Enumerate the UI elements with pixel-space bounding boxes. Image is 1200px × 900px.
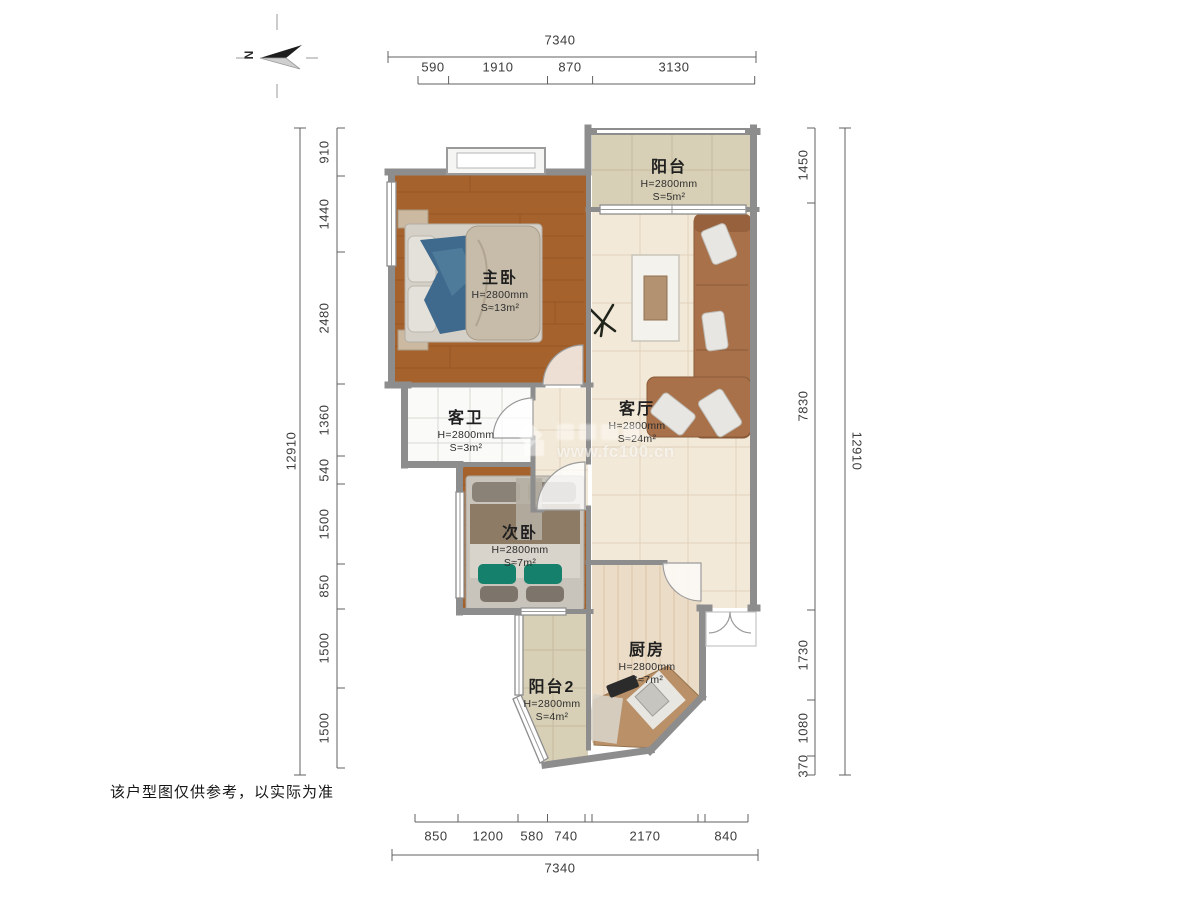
room-label-living-room: 客厅 H=2800mm S≈24m²	[609, 400, 666, 446]
dim-bottom-seg-4: 740	[554, 829, 577, 844]
room-ceiling-height: H=2800mm	[641, 178, 698, 191]
dim-bottom-total: 7340	[545, 861, 576, 876]
dim-top-seg-2: 1910	[483, 60, 514, 75]
dim-left-seg-7: 850	[317, 574, 332, 597]
dim-left-seg-5: 540	[317, 458, 332, 481]
room-label-guest-bathroom: 客卫 H=2800mm S=3m²	[438, 409, 495, 455]
room-area: S=4m²	[524, 711, 581, 724]
dim-left-seg-4: 1360	[317, 405, 332, 436]
entry-door	[706, 612, 756, 646]
dim-left-seg-1: 910	[317, 140, 332, 163]
dim-top-seg-3: 870	[558, 60, 581, 75]
dim-left-total: 12910	[284, 432, 299, 471]
dim-bottom-seg-6: 840	[714, 829, 737, 844]
room-ceiling-height: H=2800mm	[609, 420, 666, 433]
dim-bottom-seg-2: 1200	[473, 829, 504, 844]
floorplan-drawing	[0, 0, 1200, 900]
room-ceiling-height: H=2800mm	[524, 698, 581, 711]
dim-top-total: 7340	[545, 33, 576, 48]
room-label-kitchen: 厨房 H=2800mm S≈7m²	[619, 641, 676, 687]
window-balcony2-left	[515, 615, 523, 695]
room-ceiling-height: H=2800mm	[438, 429, 495, 442]
balcony-slider	[600, 205, 746, 214]
room-area: S≈24m²	[609, 433, 666, 446]
room-ceiling-height: H=2800mm	[472, 289, 529, 302]
room-name: 客卫	[438, 409, 495, 429]
dim-right-seg-5: 370	[796, 754, 811, 777]
room-ceiling-height: H=2800mm	[619, 661, 676, 674]
dim-bottom-seg-3: 580	[520, 829, 543, 844]
room-ceiling-height: H=2800mm	[492, 544, 549, 557]
room-label-second-bedroom: 次卧 H=2800mm S≈7m²	[492, 524, 549, 570]
dim-right-seg-1: 1450	[796, 150, 811, 181]
dim-right-seg-2: 7830	[796, 391, 811, 422]
room-label-balcony: 阳台 H=2800mm S=5m²	[641, 158, 698, 204]
dim-right-seg-3: 1730	[796, 640, 811, 671]
dim-bottom-seg-5: 2170	[630, 829, 661, 844]
dim-right-seg-4: 1080	[796, 713, 811, 744]
room-name: 次卧	[492, 524, 549, 544]
room-area: S≈7m²	[619, 674, 676, 687]
floorplan-page: 阳台 H=2800mm S=5m² 主卧 H=2800mm S≈13m² 客厅 …	[0, 0, 1200, 900]
dim-bottom-seg-1: 850	[424, 829, 447, 844]
room-name: 主卧	[472, 269, 529, 289]
room-label-master-bedroom: 主卧 H=2800mm S≈13m²	[472, 269, 529, 315]
bay-window	[447, 148, 545, 174]
room-area: S=5m²	[641, 191, 698, 204]
dim-left-seg-6: 1500	[317, 509, 332, 540]
room-name: 客厅	[609, 400, 666, 420]
dim-left-seg-9: 1500	[317, 713, 332, 744]
window-master-left	[387, 182, 396, 266]
room-area: S≈7m²	[492, 557, 549, 570]
dim-top-seg-1: 590	[421, 60, 444, 75]
dim-left-seg-3: 2480	[317, 303, 332, 334]
dim-left-seg-8: 1500	[317, 633, 332, 664]
slider-second-balcony2	[521, 608, 566, 615]
coffee-table	[632, 255, 679, 341]
north-label: N	[242, 51, 256, 60]
dim-left-seg-2: 1440	[317, 199, 332, 230]
room-label-balcony2: 阳台2 H=2800mm S=4m²	[524, 678, 581, 724]
dim-right-total: 12910	[850, 432, 865, 471]
room-name: 阳台	[641, 158, 698, 178]
room-area: S≈13m²	[472, 302, 529, 315]
room-name: 厨房	[619, 641, 676, 661]
room-area: S=3m²	[438, 442, 495, 455]
disclaimer-text: 该户型图仅供参考，以实际为准	[110, 781, 334, 802]
room-name: 阳台2	[524, 678, 581, 698]
dim-top-seg-4: 3130	[659, 60, 690, 75]
window-second-left	[456, 492, 464, 598]
